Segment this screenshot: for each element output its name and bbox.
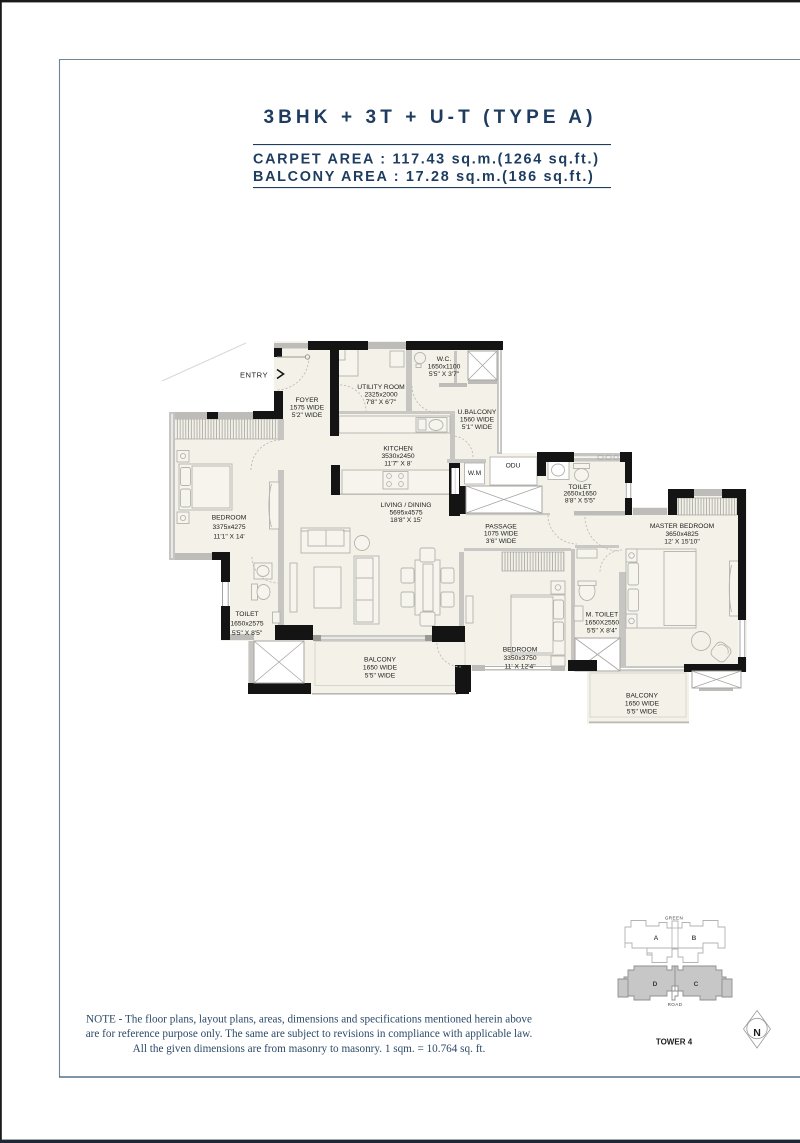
svg-text:12' X 15'10": 12' X 15'10" — [664, 539, 700, 546]
svg-text:NOTE - The floor plans, layout: NOTE - The floor plans, layout plans, ar… — [86, 1014, 532, 1026]
svg-text:2325x2000: 2325x2000 — [364, 391, 397, 398]
svg-text:U.BALCONY: U.BALCONY — [458, 409, 497, 416]
svg-text:5'5" X 3'7": 5'5" X 3'7" — [429, 371, 460, 378]
svg-text:1650 WIDE: 1650 WIDE — [363, 665, 398, 672]
svg-text:TOWER 4: TOWER 4 — [656, 1038, 693, 1047]
svg-text:D: D — [653, 981, 658, 988]
svg-text:11'1" X 14': 11'1" X 14' — [213, 534, 244, 541]
svg-text:TOILET: TOILET — [235, 611, 258, 618]
svg-text:1650X2550: 1650X2550 — [585, 620, 619, 627]
svg-text:MASTER BEDROOM: MASTER BEDROOM — [650, 523, 715, 530]
svg-text:5'1" WIDE: 5'1" WIDE — [462, 424, 493, 431]
svg-text:1650x2575: 1650x2575 — [230, 621, 263, 628]
svg-text:UTILITY ROOM: UTILITY ROOM — [357, 384, 405, 391]
svg-text:11' X 12'4": 11' X 12'4" — [504, 663, 536, 670]
svg-text:1560 WIDE: 1560 WIDE — [460, 416, 495, 423]
svg-text:5'5" X 8'5": 5'5" X 8'5" — [232, 630, 263, 637]
svg-text:ROAD: ROAD — [668, 1002, 683, 1007]
svg-text:3BHK + 3T + U-T (TYPE A): 3BHK + 3T + U-T (TYPE A) — [263, 107, 596, 128]
svg-text:FOYER: FOYER — [295, 397, 318, 404]
svg-text:BEDROOM: BEDROOM — [212, 515, 247, 522]
svg-text:ODU: ODU — [506, 463, 521, 470]
svg-text:CARPET AREA : 117.43 sq.m.(126: CARPET AREA : 117.43 sq.m.(1264 sq.ft.) — [253, 152, 600, 168]
svg-text:3350x3750: 3350x3750 — [503, 655, 536, 662]
svg-text:GREEN: GREEN — [665, 916, 683, 921]
svg-text:KITCHEN: KITCHEN — [383, 446, 413, 453]
svg-text:N: N — [753, 1027, 761, 1039]
svg-text:1650 WIDE: 1650 WIDE — [625, 700, 660, 707]
svg-text:3530x2450: 3530x2450 — [381, 453, 414, 460]
svg-text:3375x4275: 3375x4275 — [212, 524, 245, 531]
svg-text:are for reference purpose only: are for reference purpose only. The same… — [86, 1028, 533, 1040]
svg-text:All the given dimensions are f: All the given dimensions are from masonr… — [133, 1043, 486, 1055]
svg-text:8'8" X 5'5": 8'8" X 5'5" — [565, 497, 596, 504]
svg-text:BALCONY AREA : 17.28 sq.m.(186: BALCONY AREA : 17.28 sq.m.(186 sq.ft.) — [253, 169, 595, 185]
svg-text:BALCONY: BALCONY — [364, 657, 397, 664]
svg-text:A: A — [654, 935, 659, 942]
svg-text:1650x1100: 1650x1100 — [428, 363, 461, 370]
svg-text:BALCONY: BALCONY — [626, 692, 659, 699]
svg-text:3650x4825: 3650x4825 — [665, 531, 698, 538]
svg-text:5695x4575: 5695x4575 — [389, 509, 422, 516]
svg-text:PASSAGE: PASSAGE — [485, 524, 517, 531]
svg-text:5'5" X 8'4": 5'5" X 8'4" — [587, 628, 618, 635]
svg-text:18'8" X 15': 18'8" X 15' — [390, 517, 422, 524]
svg-text:W.C.: W.C. — [437, 356, 452, 363]
svg-text:LIVING / DINING: LIVING / DINING — [381, 502, 432, 509]
svg-text:5'5" WIDE: 5'5" WIDE — [365, 672, 396, 679]
svg-text:5'5" WIDE: 5'5" WIDE — [627, 708, 658, 715]
svg-text:W.M: W.M — [468, 470, 481, 477]
svg-text:ENTRY: ENTRY — [240, 371, 268, 380]
svg-text:C: C — [694, 981, 699, 988]
svg-text:3'6" WIDE: 3'6" WIDE — [486, 538, 517, 545]
svg-text:7'8" X 6'7": 7'8" X 6'7" — [366, 399, 397, 406]
svg-text:11'7" X 8': 11'7" X 8' — [384, 461, 411, 468]
svg-text:BEDROOM: BEDROOM — [503, 647, 538, 654]
svg-text:1575 WIDE: 1575 WIDE — [290, 404, 325, 411]
svg-text:B: B — [692, 935, 697, 942]
svg-text:5'2" WIDE: 5'2" WIDE — [292, 412, 323, 419]
svg-text:M. TOILET: M. TOILET — [586, 612, 618, 619]
svg-text:1075 WIDE: 1075 WIDE — [484, 531, 519, 538]
